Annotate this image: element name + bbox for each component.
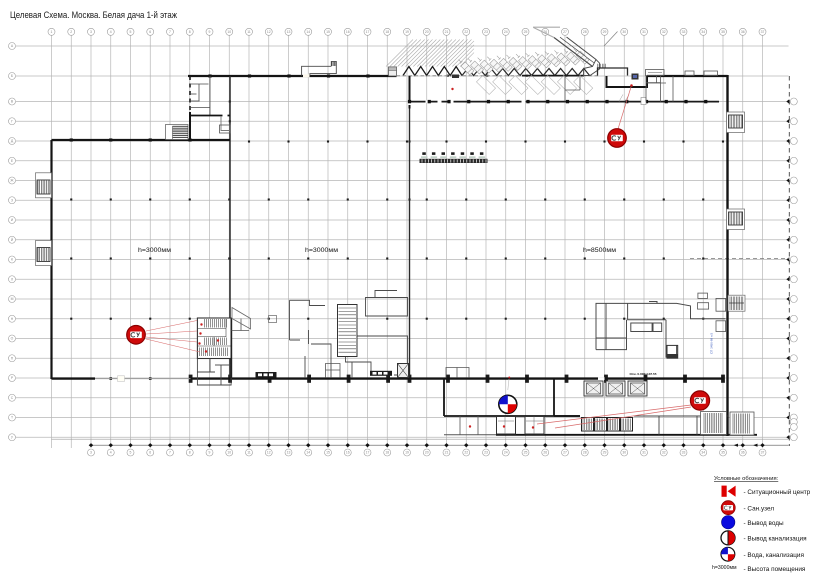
svg-text:М: М <box>11 297 14 301</box>
svg-text:4: 4 <box>110 451 112 455</box>
svg-text:7: 7 <box>169 30 171 34</box>
svg-text:36: 36 <box>741 30 745 34</box>
svg-text:21: 21 <box>445 30 449 34</box>
svg-text:34: 34 <box>701 30 705 34</box>
svg-text:3: 3 <box>90 30 92 34</box>
svg-text:О: О <box>11 337 14 341</box>
svg-text:16: 16 <box>346 30 350 34</box>
svg-text:33: 33 <box>682 30 686 34</box>
svg-text:36: 36 <box>741 451 745 455</box>
svg-text:9: 9 <box>209 30 211 34</box>
svg-text:13: 13 <box>287 451 291 455</box>
svg-text:12: 12 <box>267 451 271 455</box>
svg-text:35: 35 <box>721 451 725 455</box>
svg-text:Т: Т <box>11 416 13 420</box>
svg-text:СП 3456-89 п.5: СП 3456-89 п.5 <box>710 333 714 354</box>
svg-text:23: 23 <box>484 30 488 34</box>
svg-text:29: 29 <box>603 30 607 34</box>
svg-text:10: 10 <box>227 451 231 455</box>
svg-text:1: 1 <box>51 30 53 34</box>
svg-text:К: К <box>11 258 13 262</box>
svg-text:- Вывод канализация: - Вывод канализация <box>744 536 808 543</box>
svg-text:- Сан.узел: - Сан.узел <box>744 506 775 513</box>
svg-text:7: 7 <box>169 451 171 455</box>
svg-text:Отм. 0.000=137.55: Отм. 0.000=137.55 <box>630 372 657 376</box>
svg-text:35: 35 <box>721 30 725 34</box>
svg-text:27: 27 <box>563 30 567 34</box>
svg-text:30: 30 <box>622 451 626 455</box>
svg-text:11: 11 <box>247 451 251 455</box>
svg-text:3: 3 <box>90 451 92 455</box>
svg-text:29: 29 <box>603 451 607 455</box>
svg-text:20: 20 <box>425 30 429 34</box>
svg-text:14: 14 <box>306 451 310 455</box>
svg-text:- Вывод воды: - Вывод воды <box>744 520 784 527</box>
svg-text:19: 19 <box>405 30 409 34</box>
svg-text:h=3000мм: h=3000мм <box>138 247 171 254</box>
svg-text:15: 15 <box>326 30 330 34</box>
svg-text:32: 32 <box>662 30 666 34</box>
svg-text:8: 8 <box>189 451 191 455</box>
svg-text:27: 27 <box>563 451 567 455</box>
svg-text:26: 26 <box>543 451 547 455</box>
svg-text:28: 28 <box>583 451 587 455</box>
svg-text:17: 17 <box>366 451 370 455</box>
svg-text:10: 10 <box>227 30 231 34</box>
svg-text:13: 13 <box>287 30 291 34</box>
svg-text:31: 31 <box>642 451 646 455</box>
svg-text:Л: Л <box>11 277 13 281</box>
svg-text:19: 19 <box>405 451 409 455</box>
svg-text:2: 2 <box>70 30 72 34</box>
svg-text:20: 20 <box>425 451 429 455</box>
svg-text:11: 11 <box>247 30 251 34</box>
svg-text:14: 14 <box>306 30 310 34</box>
svg-text:12: 12 <box>267 30 271 34</box>
svg-text:28: 28 <box>583 30 587 34</box>
svg-text:21: 21 <box>445 451 449 455</box>
svg-text:З: З <box>11 198 13 202</box>
svg-text:4: 4 <box>110 30 112 34</box>
svg-text:31: 31 <box>642 30 646 34</box>
svg-text:8: 8 <box>189 30 191 34</box>
svg-text:18: 18 <box>385 30 389 34</box>
svg-text:34: 34 <box>701 451 705 455</box>
svg-text:37: 37 <box>761 30 765 34</box>
svg-text:22: 22 <box>464 30 468 34</box>
svg-text:6: 6 <box>149 451 151 455</box>
svg-text:30: 30 <box>622 30 626 34</box>
svg-text:6: 6 <box>149 30 151 34</box>
svg-text:h=8500мм: h=8500мм <box>583 247 616 254</box>
svg-text:23: 23 <box>484 451 488 455</box>
svg-text:32: 32 <box>662 451 666 455</box>
svg-text:5: 5 <box>130 451 132 455</box>
svg-text:- Высота помещения: - Высота помещения <box>744 566 806 573</box>
svg-text:5: 5 <box>130 30 132 34</box>
svg-text:Г: Г <box>11 119 13 123</box>
svg-text:22: 22 <box>464 451 468 455</box>
svg-text:24: 24 <box>504 30 508 34</box>
svg-text:Условные обозначения:: Условные обозначения: <box>714 476 779 482</box>
svg-text:15: 15 <box>326 451 330 455</box>
svg-text:25: 25 <box>524 451 528 455</box>
svg-text:37: 37 <box>761 451 765 455</box>
svg-text:33: 33 <box>682 451 686 455</box>
svg-text:- Вода, канализация: - Вода, канализация <box>744 552 805 559</box>
svg-text:9: 9 <box>209 451 211 455</box>
svg-text:- Ситуационный центр: - Ситуационный центр <box>744 488 811 496</box>
svg-text:h=3000мм: h=3000мм <box>305 247 338 254</box>
svg-text:h=3000мм: h=3000мм <box>712 565 737 571</box>
svg-text:16: 16 <box>346 451 350 455</box>
svg-text:17: 17 <box>366 30 370 34</box>
svg-text:24: 24 <box>504 451 508 455</box>
svg-text:Целевая Схема. Москва. Белая д: Целевая Схема. Москва. Белая дача 1-й эт… <box>10 10 177 21</box>
svg-text:25: 25 <box>524 30 528 34</box>
svg-text:18: 18 <box>385 451 389 455</box>
